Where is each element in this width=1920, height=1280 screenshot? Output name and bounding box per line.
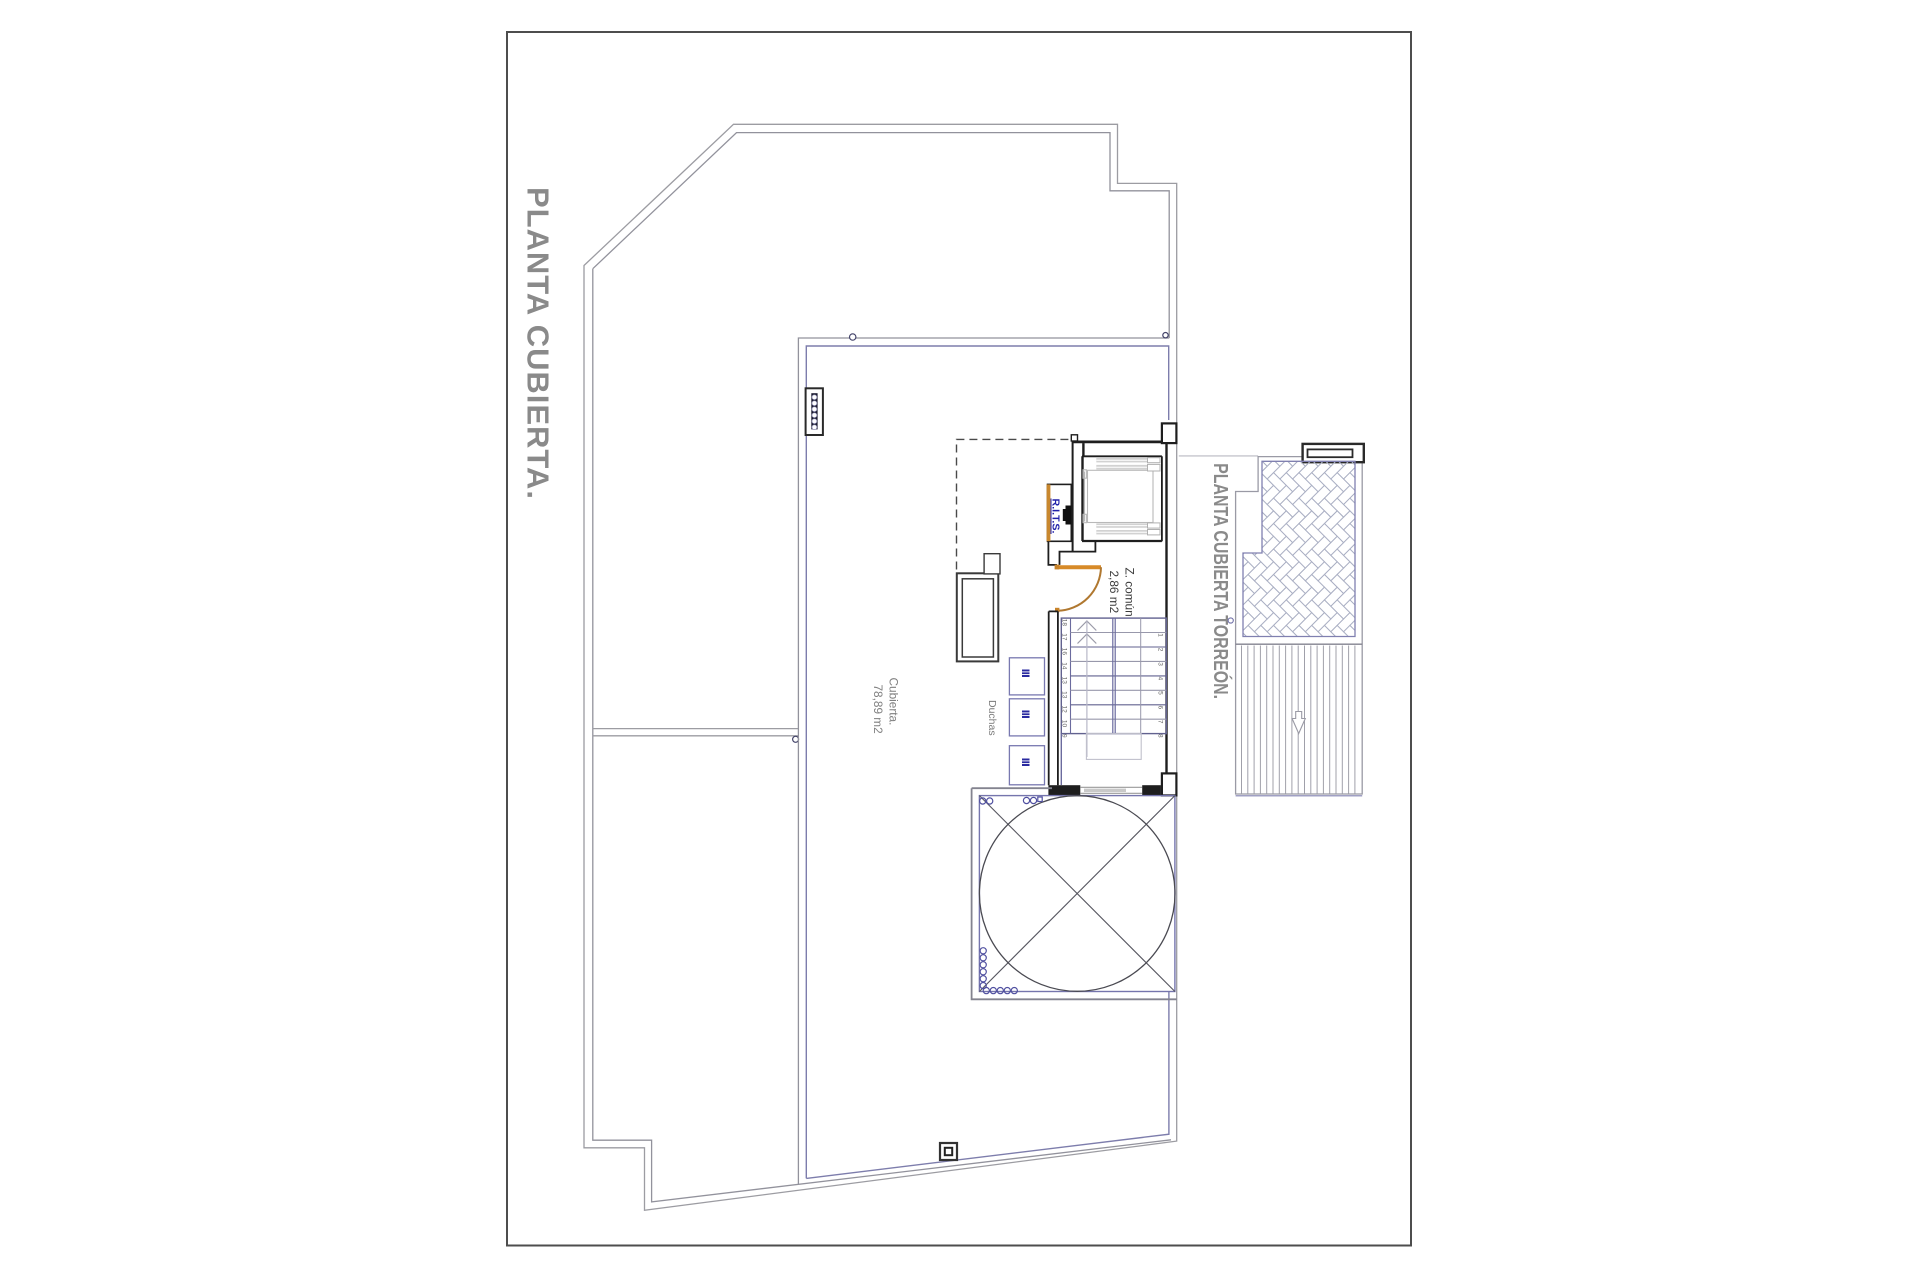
svg-text:5: 5 — [1157, 691, 1164, 695]
svg-text:8: 8 — [1157, 734, 1164, 738]
svg-text:10: 10 — [1061, 720, 1068, 728]
svg-text:7: 7 — [1157, 720, 1164, 724]
svg-text:12: 12 — [1061, 706, 1068, 714]
svg-text:3: 3 — [1157, 662, 1164, 666]
svg-text:1: 1 — [1157, 633, 1164, 637]
svg-text:13: 13 — [1061, 691, 1068, 699]
svg-text:PLANTA CUBIERTA.: PLANTA CUBIERTA. — [520, 187, 555, 500]
svg-text:2: 2 — [1157, 648, 1164, 652]
svg-text:14: 14 — [1061, 662, 1068, 670]
svg-text:9: 9 — [1061, 734, 1068, 738]
svg-text:PLANTA CUBIERTA TORREÓN.: PLANTA CUBIERTA TORREÓN. — [1209, 463, 1233, 699]
svg-text:6: 6 — [1157, 706, 1164, 710]
svg-text:13: 13 — [1061, 677, 1068, 685]
svg-text:16: 16 — [1061, 648, 1068, 656]
svg-text:Duchas: Duchas — [986, 700, 998, 736]
svg-text:Z. común2,86 m2: Z. común2,86 m2 — [1107, 568, 1137, 617]
svg-text:4: 4 — [1157, 677, 1164, 681]
svg-text:17: 17 — [1061, 633, 1068, 641]
svg-text:Cubierta.78,89 m2: Cubierta.78,89 m2 — [871, 678, 901, 734]
svg-text:18: 18 — [1061, 619, 1068, 627]
